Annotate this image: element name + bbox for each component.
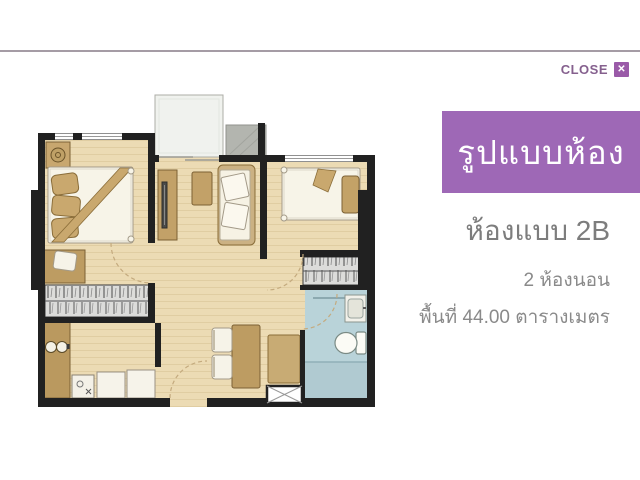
wardrobe-left — [45, 285, 152, 317]
kitchen-counter — [43, 322, 70, 398]
bedroom-2-bed — [281, 167, 360, 221]
dining-table — [232, 325, 260, 388]
coffee-table — [192, 172, 212, 205]
room-layout-banner: รูปแบบห้อง — [442, 111, 640, 193]
banner-title: รูปแบบห้อง — [457, 126, 625, 179]
bathroom-sink — [345, 295, 366, 322]
bedroom-1-bed — [48, 167, 134, 243]
nightstand-lamp — [46, 142, 70, 168]
tv-cabinet — [158, 170, 177, 240]
wardrobe-right — [303, 257, 360, 285]
floorplan-image — [30, 92, 380, 416]
service-shaft — [267, 386, 302, 403]
close-x-icon: ✕ — [614, 62, 629, 77]
dressing-desk — [44, 250, 85, 283]
close-label: CLOSE — [561, 62, 608, 77]
close-button[interactable]: CLOSE ✕ — [561, 62, 629, 77]
popup-screen: CLOSE ✕ รูปแบบห้อง ห้องแบบ 2B 2 ห้องนอน … — [0, 0, 640, 480]
top-divider — [0, 50, 640, 52]
kitchen-sink — [72, 375, 94, 398]
sideboard — [268, 335, 300, 383]
toilet — [335, 332, 366, 354]
balcony — [155, 95, 223, 157]
sofa — [218, 165, 255, 245]
